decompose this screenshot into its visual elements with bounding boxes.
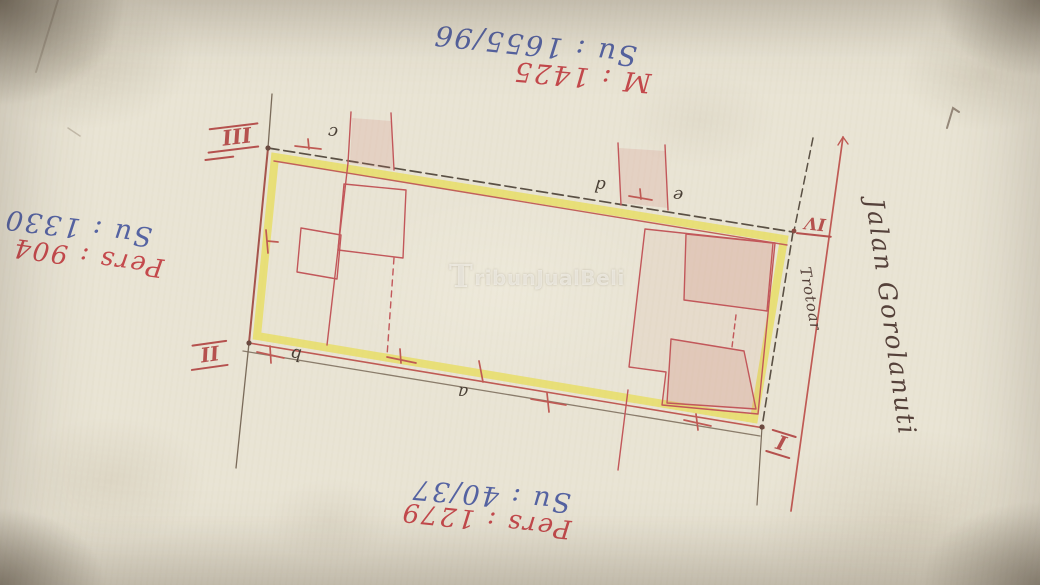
point-label-c: c bbox=[327, 121, 340, 142]
boundary-top-dashed bbox=[268, 148, 793, 232]
corner-dot-IV bbox=[792, 229, 797, 234]
left-building-annex bbox=[297, 228, 341, 279]
stray-mark-top-right bbox=[947, 108, 959, 128]
corner-marker-IV-text: IV bbox=[802, 212, 828, 234]
corner-marker-I: I bbox=[766, 428, 796, 458]
survey-drawing: III II I IV c d e b a Su : 1655/ bbox=[0, 0, 1040, 585]
corner-marker-IV: IV bbox=[797, 211, 833, 236]
fence-line-below-plot bbox=[618, 390, 628, 470]
handwritten-annotations: Su : 1655/96 M : 1425 Su : 1330 Pers : 9… bbox=[2, 18, 922, 544]
tick-top-left bbox=[295, 139, 321, 149]
tick-bottom-middle bbox=[531, 393, 566, 412]
corner-marker-III: III bbox=[202, 121, 261, 160]
survey-sketch-photo: III II I IV c d e b a Su : 1655/ bbox=[0, 0, 1040, 585]
boundary-top-red-inner bbox=[274, 161, 787, 245]
left-division-line bbox=[327, 112, 351, 345]
point-label-e: e bbox=[672, 185, 684, 206]
corner-dot-I bbox=[759, 424, 764, 429]
stray-marks bbox=[36, 0, 959, 136]
extension-below-II bbox=[236, 343, 249, 468]
point-label-b: b bbox=[290, 344, 303, 365]
left-building-main bbox=[338, 184, 406, 258]
point-label-a: a bbox=[457, 382, 468, 403]
extension-above-III bbox=[268, 94, 272, 148]
extension-below-I bbox=[757, 427, 762, 505]
street-name-label: Jalan Gorolanuti bbox=[859, 192, 922, 438]
interior-dashed-line-left bbox=[387, 258, 394, 356]
right-building-room-upper bbox=[684, 234, 773, 311]
corner-dot-II bbox=[246, 340, 251, 345]
corner-dot-III bbox=[265, 145, 270, 150]
point-label-d: d bbox=[594, 175, 607, 196]
buildings bbox=[297, 112, 775, 470]
gate-structure-c-fill bbox=[350, 118, 393, 170]
corner-marker-II-text: II bbox=[198, 341, 221, 368]
paper-crease-top-left bbox=[36, 0, 58, 72]
corner-marker-I-text: I bbox=[772, 430, 790, 456]
corner-marker-II: II bbox=[188, 340, 229, 370]
stray-mark-left bbox=[68, 128, 80, 136]
sidewalk-label: Trotoar bbox=[796, 266, 825, 333]
corner-marker-III-text: III bbox=[220, 122, 254, 151]
